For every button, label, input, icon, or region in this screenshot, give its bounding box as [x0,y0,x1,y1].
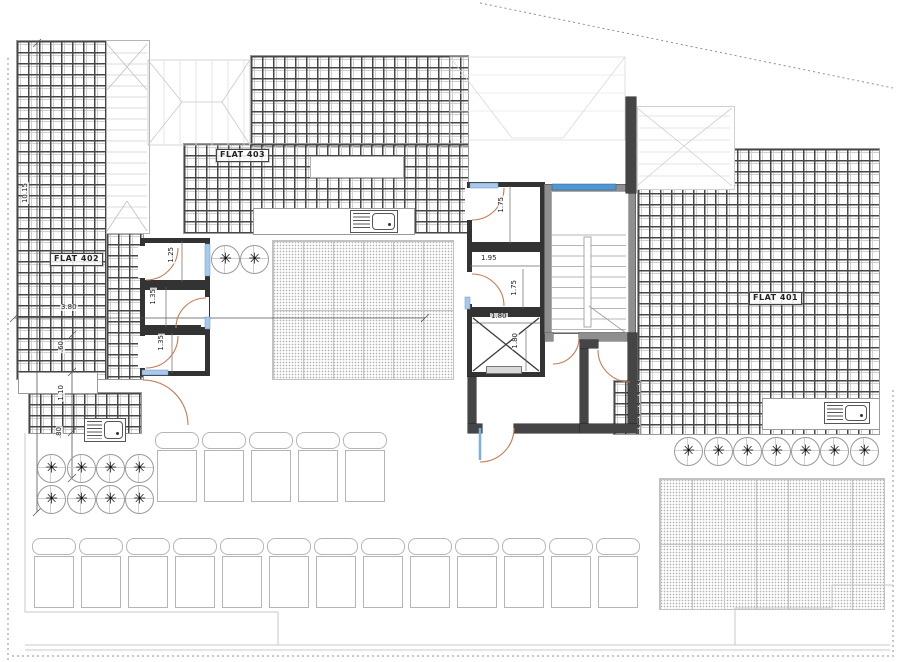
sun-lounger [267,538,311,610]
tree-planter: ✳ [211,245,240,274]
lounger-bed [157,450,197,502]
lounger-bed [204,450,244,502]
tree-planter: ✳ [762,437,791,466]
sun-lounger [549,538,593,610]
roof-section-flat401 [637,106,735,190]
lounger-bed [128,556,168,608]
sun-lounger [596,538,640,610]
dimension-label: 1.75 [498,196,505,214]
lounger-pillow [126,538,170,555]
sun-lounger [202,432,246,504]
dimension-label: 1.80 [512,332,519,350]
tree-icon: ✳ [133,461,146,476]
lounger-bed [598,556,638,608]
lounger-pillow [596,538,640,555]
lounger-bed [298,450,338,502]
tree-icon: ✳ [712,444,725,459]
lounger-pillow [455,538,499,555]
tree-icon: ✳ [858,444,871,459]
lounger-pillow [296,432,340,449]
lounger-pillow [549,538,593,555]
sink-drainer [87,421,102,439]
lounger-pillow [155,432,199,449]
lounger-bed [363,556,403,608]
door-opening [138,336,145,368]
lounger-bed [175,556,215,608]
sun-lounger [314,538,358,610]
room-1-75-north [467,182,545,247]
lounger-bed [81,556,121,608]
flat-402-label: FLAT 402 [50,253,103,266]
tree-planter: ✳ [240,245,269,274]
sink-flat403 [350,210,398,233]
dimension-label: 1.25 [168,246,175,264]
sun-lounger [502,538,546,610]
sun-lounger [155,432,199,504]
lounger-bed [222,556,262,608]
tree-icon: ✳ [219,252,232,267]
lounger-pillow [343,432,387,449]
wall-lobby-south-a [468,424,482,433]
wall-entry-west [580,340,588,432]
tree-icon: ✳ [799,444,812,459]
tree-icon: ✳ [770,444,783,459]
tree-icon: ✳ [104,492,117,507]
tree-planter: ✳ [850,437,879,466]
dimension-label: 1.10 [58,384,65,402]
flat-403-label: FLAT 403 [216,149,269,162]
wall-entry-east [628,333,637,432]
dimension-label: 1.75 [511,279,518,297]
tree-planter: ✳ [125,454,154,483]
lounger-pillow [502,538,546,555]
flat-401-label: FLAT 401 [749,292,802,305]
tree-planter: ✳ [37,454,66,483]
dimension-label: 1.95 [480,255,498,262]
hip-roof-west [148,60,250,145]
pergola-deck-east [659,478,885,610]
tree-planter: ✳ [96,454,125,483]
wall-entry-south [580,424,637,433]
door-opening [201,297,209,327]
lounger-pillow [173,538,217,555]
dimension-label: 1.35 [150,288,157,306]
roof-section-strip [106,40,150,234]
lounger-bed [457,556,497,608]
tree-icon: ✳ [133,492,146,507]
lounger-bed [345,450,385,502]
pergola-deck-west [272,240,454,380]
room-1-25 [140,238,210,285]
tree-icon: ✳ [45,461,58,476]
lounger-pillow [314,538,358,555]
wall-stair-south-a [545,333,553,341]
lounger-pillow [32,538,76,555]
door-opening [465,272,472,304]
tree-planter: ✳ [733,437,762,466]
sink-drainer [827,405,843,421]
stairwell [545,185,635,333]
lounger-bed [316,556,356,608]
lounger-bed [551,556,591,608]
sink-basin [845,405,867,421]
tree-planter: ✳ [67,454,96,483]
sun-lounger [126,538,170,610]
sun-lounger [361,538,405,610]
door-opening [465,188,472,220]
dimension-label: 3.80 [60,304,78,311]
sun-lounger [173,538,217,610]
sun-lounger [343,432,387,504]
lounger-bed [410,556,450,608]
door-opening [138,246,145,278]
sun-lounger [79,538,123,610]
lounger-pillow [79,538,123,555]
tiled-terrace-flat403-north [250,55,469,147]
lounger-pillow [249,432,293,449]
tree-icon: ✳ [682,444,695,459]
tree-icon: ✳ [75,461,88,476]
sink-flat401 [824,402,870,424]
tree-icon: ✳ [248,252,261,267]
dimension-label: 1.80 [490,313,508,320]
lounger-pillow [361,538,405,555]
tree-planter: ✳ [96,485,125,514]
tree-planter: ✳ [67,485,96,514]
tree-icon: ✳ [45,492,58,507]
sink-basin [104,421,123,439]
tree-planter: ✳ [820,437,849,466]
sun-lounger [249,432,293,504]
hip-roof-centre [450,57,625,140]
lounger-pillow [202,432,246,449]
tree-planter: ✳ [125,485,154,514]
dimension-label: 10.15 [22,182,29,204]
tree-icon: ✳ [741,444,754,459]
tiled-terrace-flat402-west [16,40,108,380]
tree-planter: ✳ [674,437,703,466]
lounger-bed [251,450,291,502]
dimension-label: .80 [56,426,63,439]
sun-lounger [220,538,264,610]
lounger-pillow [408,538,452,555]
sun-lounger [408,538,452,610]
dimension-label: 1.35 [158,334,165,352]
sun-lounger [32,538,76,610]
floor-plan-canvas: FLAT 403 FLAT 402 FLAT 401 10.153.801.25… [0,0,900,662]
tree-icon: ✳ [75,492,88,507]
room-1-95 [467,247,545,312]
sink-basin [372,213,395,230]
wall-entry-north-a [580,340,598,348]
skylight [310,156,404,178]
lift-door [486,366,522,374]
dimension-label: .60 [58,340,65,353]
sink-flat402 [84,418,126,442]
tree-icon: ✳ [828,444,841,459]
lounger-pillow [267,538,311,555]
tree-planter: ✳ [704,437,733,466]
wall-north-spine [626,97,636,193]
lounger-bed [34,556,74,608]
sun-lounger [455,538,499,610]
tree-planter: ✳ [791,437,820,466]
sun-lounger [296,432,340,504]
lounger-bed [504,556,544,608]
tree-planter: ✳ [37,485,66,514]
tree-icon: ✳ [104,461,117,476]
wall-lobby-south-b [514,424,582,433]
room-1-35b [140,330,210,376]
sink-drainer [353,213,370,230]
lounger-bed [269,556,309,608]
lounger-pillow [220,538,264,555]
